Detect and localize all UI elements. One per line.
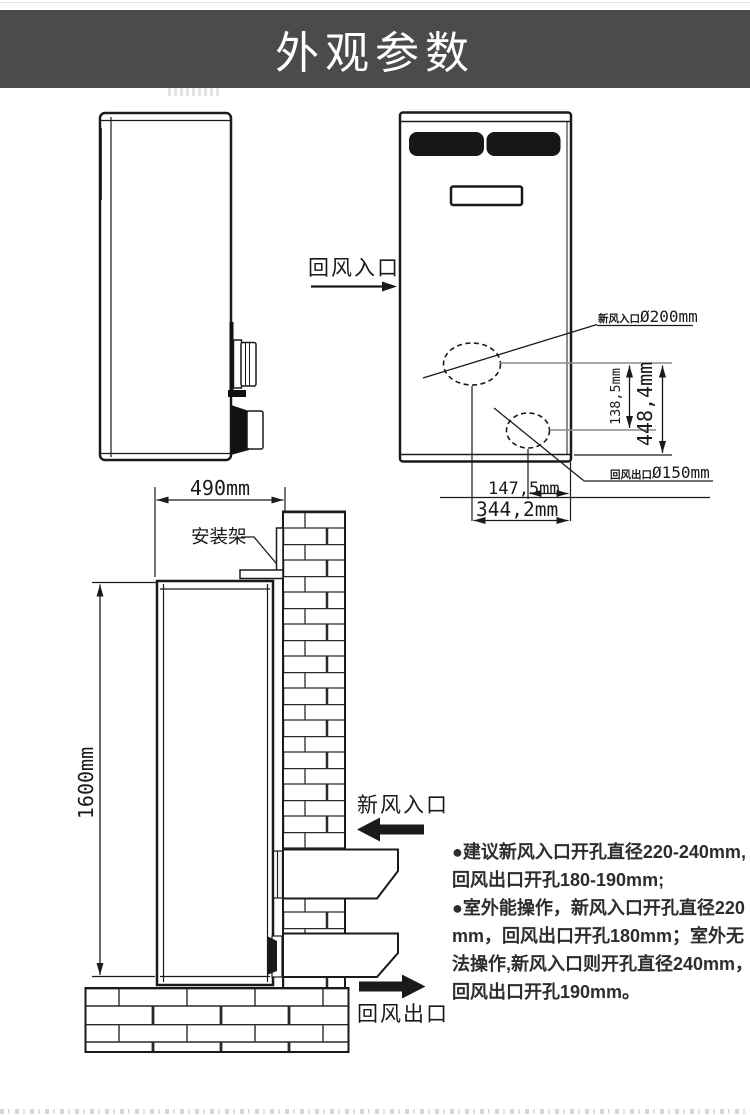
note-line: 法操作,新风入口则开孔直径240mm， xyxy=(452,950,750,978)
dim-text-490: 490mm xyxy=(190,476,250,500)
note-line: 回风出口开孔190mm。 xyxy=(452,978,750,1006)
wall-brick-column xyxy=(283,512,345,989)
dim-text-344: 344,2mm xyxy=(476,498,558,521)
return-air-arrow-right-icon xyxy=(359,975,426,999)
floor-brick-base xyxy=(86,988,349,1052)
fresh-air-inlet-label: 新风入口 xyxy=(357,794,449,817)
front-view-body xyxy=(400,113,571,462)
note-line: 回风出口开孔180-190mm; xyxy=(452,866,750,894)
dim-text-147: 147,5mm xyxy=(488,479,560,499)
lower-duct-stub xyxy=(247,411,263,449)
lower-duct-wedge xyxy=(267,936,277,975)
return-air-inlet-label: 回风入口 xyxy=(308,257,400,280)
note-line: ●建议新风入口开孔直径220-240mm, xyxy=(452,838,750,866)
side-view-body xyxy=(100,113,231,460)
display-panel xyxy=(451,187,522,206)
fresh-air-arrow-left-icon xyxy=(357,818,424,842)
return-air-duct xyxy=(283,934,398,978)
unit-side-body xyxy=(157,581,273,985)
air-grille-left xyxy=(409,132,484,156)
return-air-hole-label: 回风出口Ø150mm xyxy=(610,463,710,482)
stub-bracket xyxy=(228,390,246,397)
fresh-air-hole-label: 新风入口Ø200mm xyxy=(598,307,698,326)
dim-text-1600: 1600mm xyxy=(74,747,98,819)
drilling-notes: ●建议新风入口开孔直径220-240mm, 回风出口开孔180-190mm; ●… xyxy=(452,838,750,1006)
note-line: mm，回风出口开孔180mm；室外无 xyxy=(452,922,750,950)
bracket-label: 安装架 xyxy=(191,526,247,547)
return-air-inlet-arrow-icon xyxy=(382,282,397,292)
upper-duct-stub xyxy=(241,343,256,387)
fresh-air-duct xyxy=(283,850,398,899)
return-air-outlet-label: 回风出口 xyxy=(357,1003,449,1026)
mounting-bracket-arm xyxy=(240,570,283,579)
dim-text-448: 448,4mm xyxy=(633,362,657,446)
side-view-drawing xyxy=(100,113,263,460)
cut-off-text-strip xyxy=(0,1109,750,1114)
installation-view-drawing xyxy=(86,487,399,1052)
bracket-leader xyxy=(241,537,281,569)
air-grille-right xyxy=(487,132,561,156)
note-line: ●室外能操作，新风入口开孔直径220 xyxy=(452,894,750,922)
dim-text-138: 138,5mm xyxy=(608,368,624,425)
